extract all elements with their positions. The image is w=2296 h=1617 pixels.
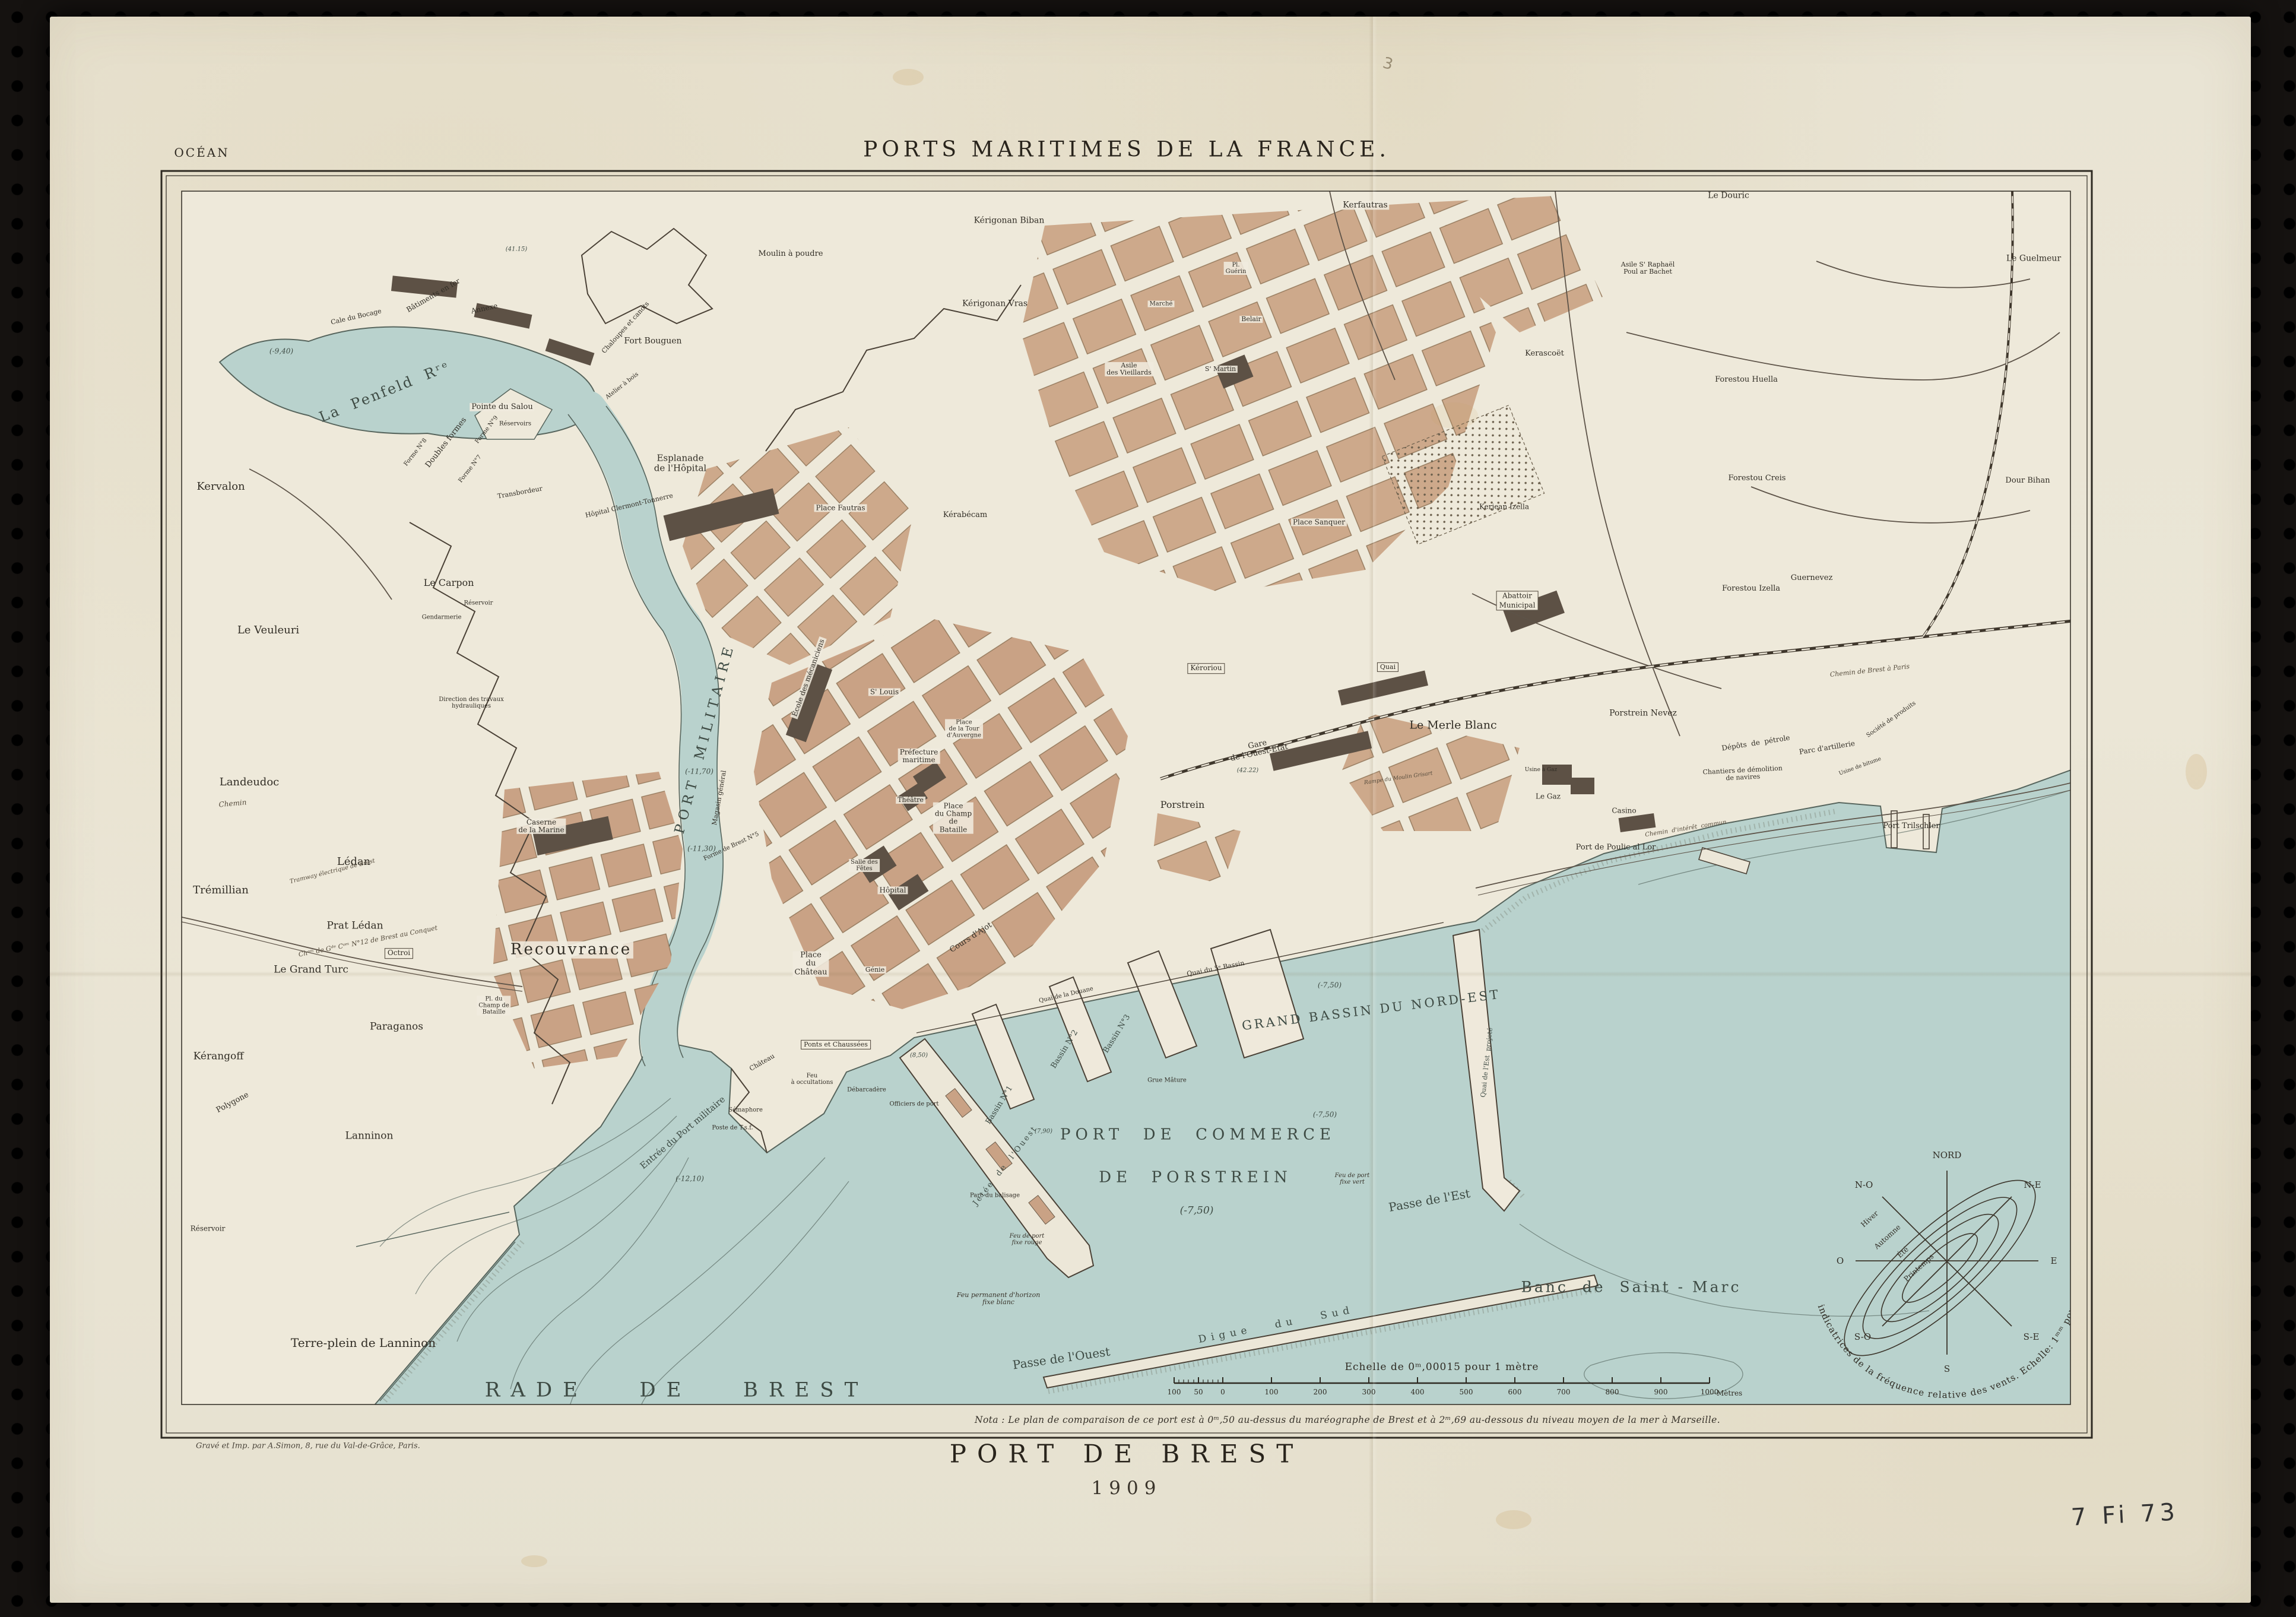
map-label: Réservoir <box>191 1225 226 1232</box>
map-label: Chemin <box>218 798 247 808</box>
scale-tick-label: 1000 <box>1701 1388 1719 1396</box>
scale-tick-label: 100 <box>1265 1388 1279 1396</box>
scale-tick-label: 200 <box>1314 1388 1327 1396</box>
map-label: Pointe du Salou <box>470 403 534 411</box>
map-label: Chemin d'intérêt commun <box>1645 819 1727 839</box>
map-label: PORT MILITAIRE <box>673 641 738 835</box>
map-label: Génie <box>864 966 886 974</box>
wind-rose-season: Hiver <box>1860 1210 1880 1229</box>
map-label: 3 <box>1381 55 1394 74</box>
map-label: Tramway électrique de Brest <box>289 858 376 885</box>
map-label: École des mécaniciens <box>790 636 827 719</box>
scale-tick-label: 0 <box>1220 1388 1225 1396</box>
map-label: Doubles formes <box>424 416 469 470</box>
map-label: (-7,50) <box>1180 1206 1214 1217</box>
map-label: Pl. Guérin <box>1224 262 1248 275</box>
map-label: Le Carpon <box>424 578 474 588</box>
map-label: Kervalon <box>196 481 245 493</box>
scale-tick-mark <box>1417 1377 1418 1383</box>
map-label: La Penfeld Rʳᵉ <box>317 359 452 426</box>
map-label: Asile S' Raphaël Poul ar Bachet <box>1621 261 1675 275</box>
map-label: Marché <box>1148 301 1175 307</box>
map-label: Réservoirs <box>499 421 531 427</box>
map-label: Débarcadère <box>847 1087 886 1093</box>
scale-tick-mark <box>1368 1377 1369 1383</box>
map-label: Usine de bitume <box>1838 757 1882 778</box>
scale-tick-mark <box>1271 1377 1272 1383</box>
map-label: Landeudoc <box>220 776 280 788</box>
map-label-layer: RADE DE BRESTPORT DE COMMERCEDE PORSTREI… <box>0 0 2296 1617</box>
scale-tick-mark <box>1660 1377 1661 1383</box>
scale-tick-label: 400 <box>1411 1388 1425 1396</box>
map-label: Bassin N°2 <box>1049 1029 1080 1070</box>
map-label: (-11,70) <box>685 768 713 775</box>
scale-tick-mark <box>1320 1377 1321 1383</box>
map-label: Port Trilschler <box>1883 822 1939 830</box>
map-label: Forme N°8 <box>402 437 428 468</box>
map-label: Le Douric <box>1708 191 1749 200</box>
map-label: Belair <box>1239 316 1263 323</box>
map-label: Lédan <box>337 856 370 868</box>
map-label: Forestou Huella <box>1715 376 1778 384</box>
map-label: Feu permanent d'horizon fixe blanc <box>957 1292 1041 1306</box>
scale-tick-label: 800 <box>1606 1388 1619 1396</box>
scale-tick-mark <box>1466 1377 1467 1383</box>
map-label: Dour Bihan <box>2005 477 2050 485</box>
scale-tick-label: 700 <box>1557 1388 1571 1396</box>
map-label: Kerascoët <box>1525 350 1564 358</box>
map-label: Forestou Izella <box>1722 585 1780 593</box>
map-label: Chemin de Brest à Paris <box>1829 663 1910 678</box>
map-label: Magasin général <box>711 770 728 826</box>
map-label: (-7,50) <box>1313 1111 1337 1118</box>
map-label: Feu à occultations <box>791 1073 833 1086</box>
map-label: Caserne de la Marine <box>516 819 566 834</box>
map-label: Le Grand Turc <box>274 965 348 976</box>
scale-tick-mark <box>1222 1377 1223 1383</box>
map-label: Quai <box>1377 662 1398 672</box>
map-label: Cours d'Ajot <box>949 921 994 955</box>
map-label: Kérigonan Biban <box>974 216 1045 225</box>
map-label: Fort Bouguen <box>624 337 681 345</box>
map-label: Gendarmerie <box>422 614 462 621</box>
scale-tick-mark <box>1198 1377 1199 1383</box>
scale-tick-label: 900 <box>1654 1388 1668 1396</box>
map-label: Porstrein Nevez <box>1609 709 1677 718</box>
scale-tick-label: 300 <box>1362 1388 1376 1396</box>
wind-rose-direction: N-O <box>1855 1180 1873 1190</box>
map-label: Pl. du Champ de Bataille <box>477 996 510 1016</box>
map-label: Moulin à poudre <box>759 250 823 258</box>
map-label: Lanninon <box>345 1131 394 1142</box>
map-label: Le Gaz <box>1536 792 1561 800</box>
map-label: Ponts et Chaussées <box>801 1040 871 1050</box>
map-label: Quai du 5ᵉ Bassin <box>1186 960 1245 978</box>
map-label: DE PORSTREIN <box>1099 1169 1292 1187</box>
map-label: Réservoir <box>464 600 493 607</box>
map-label: Banc de Saint - Marc <box>1521 1279 1742 1295</box>
map-label: Kérangoff <box>194 1051 244 1063</box>
wind-rose-season: Printemps <box>1902 1253 1935 1283</box>
map-label: Entrée du Port militaire <box>638 1094 727 1171</box>
map-label: Le Veuleuri <box>237 624 299 636</box>
wind-rose-direction: NORD <box>1933 1150 1962 1161</box>
map-label: Usine à Gaz <box>1525 768 1558 773</box>
map-label: Kérabécam <box>943 511 987 519</box>
scale-tick-mark <box>1612 1377 1613 1383</box>
map-label: Société de produits <box>1865 700 1917 739</box>
map-label: Asile des Vieillards <box>1105 362 1153 376</box>
map-label: Porstrein <box>1160 800 1205 810</box>
map-label: Casino <box>1612 807 1636 814</box>
map-label: Rampe du Moulin Grisart <box>1364 771 1434 787</box>
map-label: Parc d'artillerie <box>1799 740 1856 756</box>
map-label: Octroi <box>385 948 413 959</box>
map-label: Annexe <box>471 302 499 315</box>
map-label: (-12,10) <box>676 1175 704 1182</box>
map-label: Jetée de l'Ouest <box>972 1124 1039 1207</box>
map-label: Poste de T.s.f. <box>712 1125 753 1131</box>
map-label: Château <box>749 1052 776 1073</box>
wind-rose-direction: S-E <box>2024 1332 2040 1342</box>
map-label: Le Guelmeur <box>2006 254 2061 263</box>
map-label: Chaloupes et canots <box>601 300 651 355</box>
map-label: (42.22) <box>1237 768 1258 774</box>
scale-tick-label: 50 <box>1194 1388 1203 1396</box>
wind-rose-season: Automne <box>1873 1223 1902 1251</box>
map-label: Hôpital Clermont-Tonnerre <box>585 492 674 519</box>
map-label: GRAND BASSIN DU NORD-EST <box>1241 988 1501 1033</box>
map-label: Sémaphore <box>728 1107 763 1114</box>
wind-rose-direction: S <box>1944 1364 1950 1374</box>
map-label: PORT DE COMMERCE <box>1060 1127 1336 1144</box>
map-label: (-11,30) <box>687 845 716 852</box>
map-label: Chantiers de démolition de navires <box>1702 765 1783 783</box>
scan-page: { "colors": { "board": "#151210", "paper… <box>0 0 2296 1617</box>
map-label: Gare de l'Ouest-Etat <box>1228 735 1289 763</box>
wind-rose-direction: E <box>2051 1256 2057 1266</box>
map-label: Prat Lédan <box>326 921 383 932</box>
map-label: Théâtre <box>896 797 925 804</box>
map-label: Port de Poulic al Lor <box>1576 844 1656 852</box>
map-label: Paraganos <box>370 1022 423 1033</box>
map-label: Forme N°7 <box>457 454 483 484</box>
map-label: Place Fautras <box>814 504 867 512</box>
map-label: Guernevez <box>1791 574 1833 582</box>
scale-tick-label: 100 <box>1168 1388 1181 1396</box>
map-label: Abattoir Municipal <box>1496 591 1539 610</box>
map-label: Trémillian <box>193 884 249 896</box>
scale-tick-label: 600 <box>1508 1388 1522 1396</box>
map-label: Polygone <box>215 1091 250 1115</box>
map-label: RADE DE BREST <box>485 1379 869 1401</box>
map-label: Dépôts de pétrole <box>1721 734 1791 752</box>
wind-rose-direction: S-O <box>1854 1332 1871 1342</box>
map-label: Officiers de port <box>889 1101 938 1108</box>
map-label: Chᵉᵐ de Gᵈᵉ Cᵒᵐ N°12 de Brest au Conquet <box>298 924 438 958</box>
map-label: (7,90) <box>1035 1128 1052 1135</box>
map-label: Place du Champ de Bataille <box>933 803 973 834</box>
map-label: Place du Château <box>792 952 829 977</box>
map-label: Cale du Bocage <box>330 307 382 326</box>
scale-tick-mark <box>1563 1377 1564 1383</box>
wind-rose-season: Été <box>1896 1245 1910 1260</box>
map-label: Bassin N°3 <box>1102 1013 1132 1055</box>
map-label: Bâtiments en fer <box>405 277 462 314</box>
map-label: Place Sanquer <box>1291 518 1347 526</box>
scale-tick-mark <box>1514 1377 1515 1383</box>
map-label: (-9,40) <box>269 347 293 355</box>
map-label: Le Merle Blanc <box>1409 719 1496 732</box>
map-label: Kérigonan Vras <box>962 299 1028 308</box>
map-label: Atelier à bois <box>604 371 640 401</box>
map-label: Bassin N°1 <box>984 1085 1014 1126</box>
map-label: S' Martin <box>1203 366 1238 373</box>
map-label: Hôpital <box>877 886 908 894</box>
map-label: Forme N°9 <box>474 415 499 445</box>
map-label: Forme de Brest N°5 <box>703 831 760 863</box>
map-label: Feu de port fixe vert <box>1335 1172 1370 1185</box>
map-label: Transbordeur <box>497 485 543 500</box>
map-label: Feu de port fixe rouge <box>1010 1233 1045 1246</box>
map-label: Direction des travaux hydrauliques <box>439 696 503 709</box>
wind-rose-direction: O <box>1837 1256 1844 1266</box>
map-label: Digue du Sud <box>1197 1304 1355 1345</box>
map-label: Kéroriou <box>1187 663 1225 674</box>
map-label: Kerfautras <box>1341 201 1389 210</box>
map-label: S' Louis <box>868 688 900 696</box>
map-label: Place de la Tour d'Auvergne <box>945 719 983 739</box>
map-label: Passe de l'Est <box>1388 1187 1472 1214</box>
map-label: (-7,50) <box>1318 981 1342 989</box>
map-label: Quai de l'Est projeté <box>1480 1028 1494 1098</box>
map-label: Recouvrance <box>509 941 633 959</box>
scale-tick-mark <box>1174 1377 1175 1383</box>
map-label: Esplanade de l'Hôpital <box>654 454 706 473</box>
map-label: (8,50) <box>910 1052 928 1059</box>
map-label: Grue Mâture <box>1147 1077 1187 1084</box>
map-label: Quai de la Douane <box>1038 985 1094 1004</box>
scale-tick-label: 500 <box>1460 1388 1473 1396</box>
map-label: Forestou Creis <box>1729 474 1786 483</box>
map-label: Terre-plein de Lanninon <box>291 1336 436 1349</box>
scale-tick-mark <box>1709 1377 1710 1383</box>
map-label: Salle des Fêtes <box>849 859 880 872</box>
map-label: (41.15) <box>506 246 527 253</box>
map-label: Passe de l'Ouest <box>1012 1345 1111 1372</box>
map-label: Préfecture maritime <box>898 749 940 764</box>
map-label: Kerjean Izella <box>1479 503 1529 511</box>
wind-rose-direction: N-E <box>2024 1180 2041 1190</box>
map-label: Parc du balisage <box>970 1193 1020 1199</box>
